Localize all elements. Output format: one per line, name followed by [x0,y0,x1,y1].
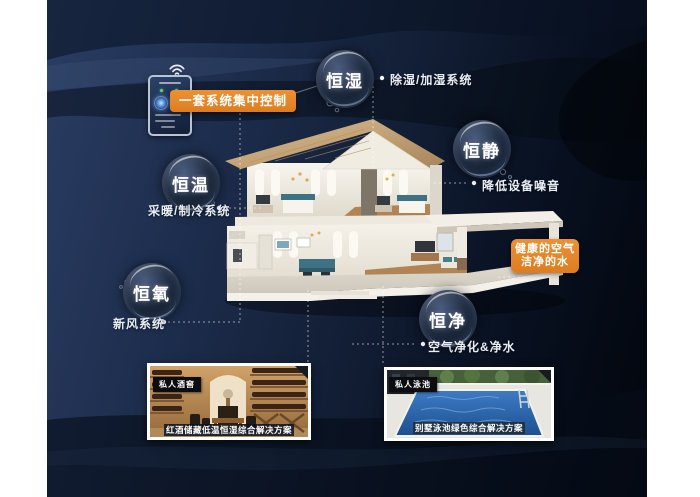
pool-caption: 别墅泳池绿色综合解决方案 [413,422,525,434]
bubble-label: 恒净 [429,307,467,332]
bubble-constant-oxygen: 恒氧 [123,263,181,321]
photo-corner-ribbon [538,370,551,383]
bubble-label: 恒氧 [133,280,171,305]
healthy-badge-line2: 洁净的水 [511,256,579,269]
phone-label-row [155,114,181,116]
wine-cellar-photo: 私人酒窖 红酒储藏低温恒湿综合解决方案 [147,363,311,440]
bubble-constant-quiet: 恒静 [453,120,511,178]
phone-button-row [155,120,175,122]
healthy-air-water-badge: 健康的空气 洁净的水 [511,239,579,273]
central-control-badge: 一套系统集中控制 [170,90,296,112]
infographic-canvas: 一套系统集中控制 健康的空气 洁净的水 恒湿 除湿/加湿系统 恒静 降低设备噪音… [0,0,700,497]
healthy-badge-line1: 健康的空气 [511,243,579,256]
bubble-label: 恒温 [172,171,210,196]
wine-cellar-tag: 私人酒窖 [153,377,201,392]
desc-humidity-system: 除湿/加湿系统 [390,71,472,88]
desc-noise-reduction: 降低设备噪音 [482,177,560,194]
desc-purification-system: 空气净化&净水 [428,338,516,355]
pool-tag: 私人泳池 [389,377,437,392]
photo-corner-ribbon [295,366,308,379]
wifi-icon [168,62,186,77]
phone-header-bar [159,82,181,84]
thermostat-dial [154,96,168,110]
pool-photo: 私人泳池 别墅泳池绿色综合解决方案 [384,367,554,441]
house-cutaway-illustration [215,115,567,347]
bubble-label: 恒湿 [326,67,364,92]
phone-home-bar [161,126,175,128]
bubble-label: 恒静 [463,137,501,162]
bubble-constant-humidity: 恒湿 [316,50,374,108]
content-area: 一套系统集中控制 健康的空气 洁净的水 恒湿 除湿/加湿系统 恒静 降低设备噪音… [47,0,647,497]
desc-fresh-air-system: 新风系统 [113,315,165,332]
status-led [160,89,163,92]
wine-cellar-caption: 红酒储藏低温恒湿综合解决方案 [164,424,294,436]
desc-heating-cooling-system: 采暖/制冷系统 [148,202,230,219]
